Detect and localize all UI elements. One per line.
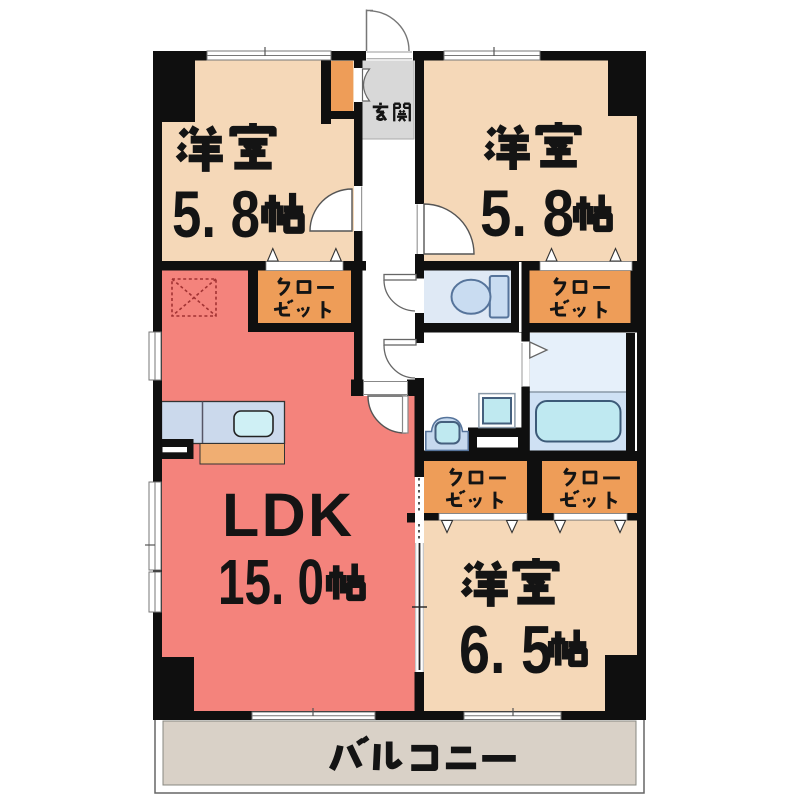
svg-text:LDK: LDK bbox=[222, 481, 352, 549]
svg-text:5. 8: 5. 8 bbox=[172, 177, 260, 251]
svg-text:6. 5: 6. 5 bbox=[459, 612, 552, 688]
svg-text:5. 8: 5. 8 bbox=[480, 176, 574, 250]
svg-text:15. 0: 15. 0 bbox=[218, 546, 324, 618]
